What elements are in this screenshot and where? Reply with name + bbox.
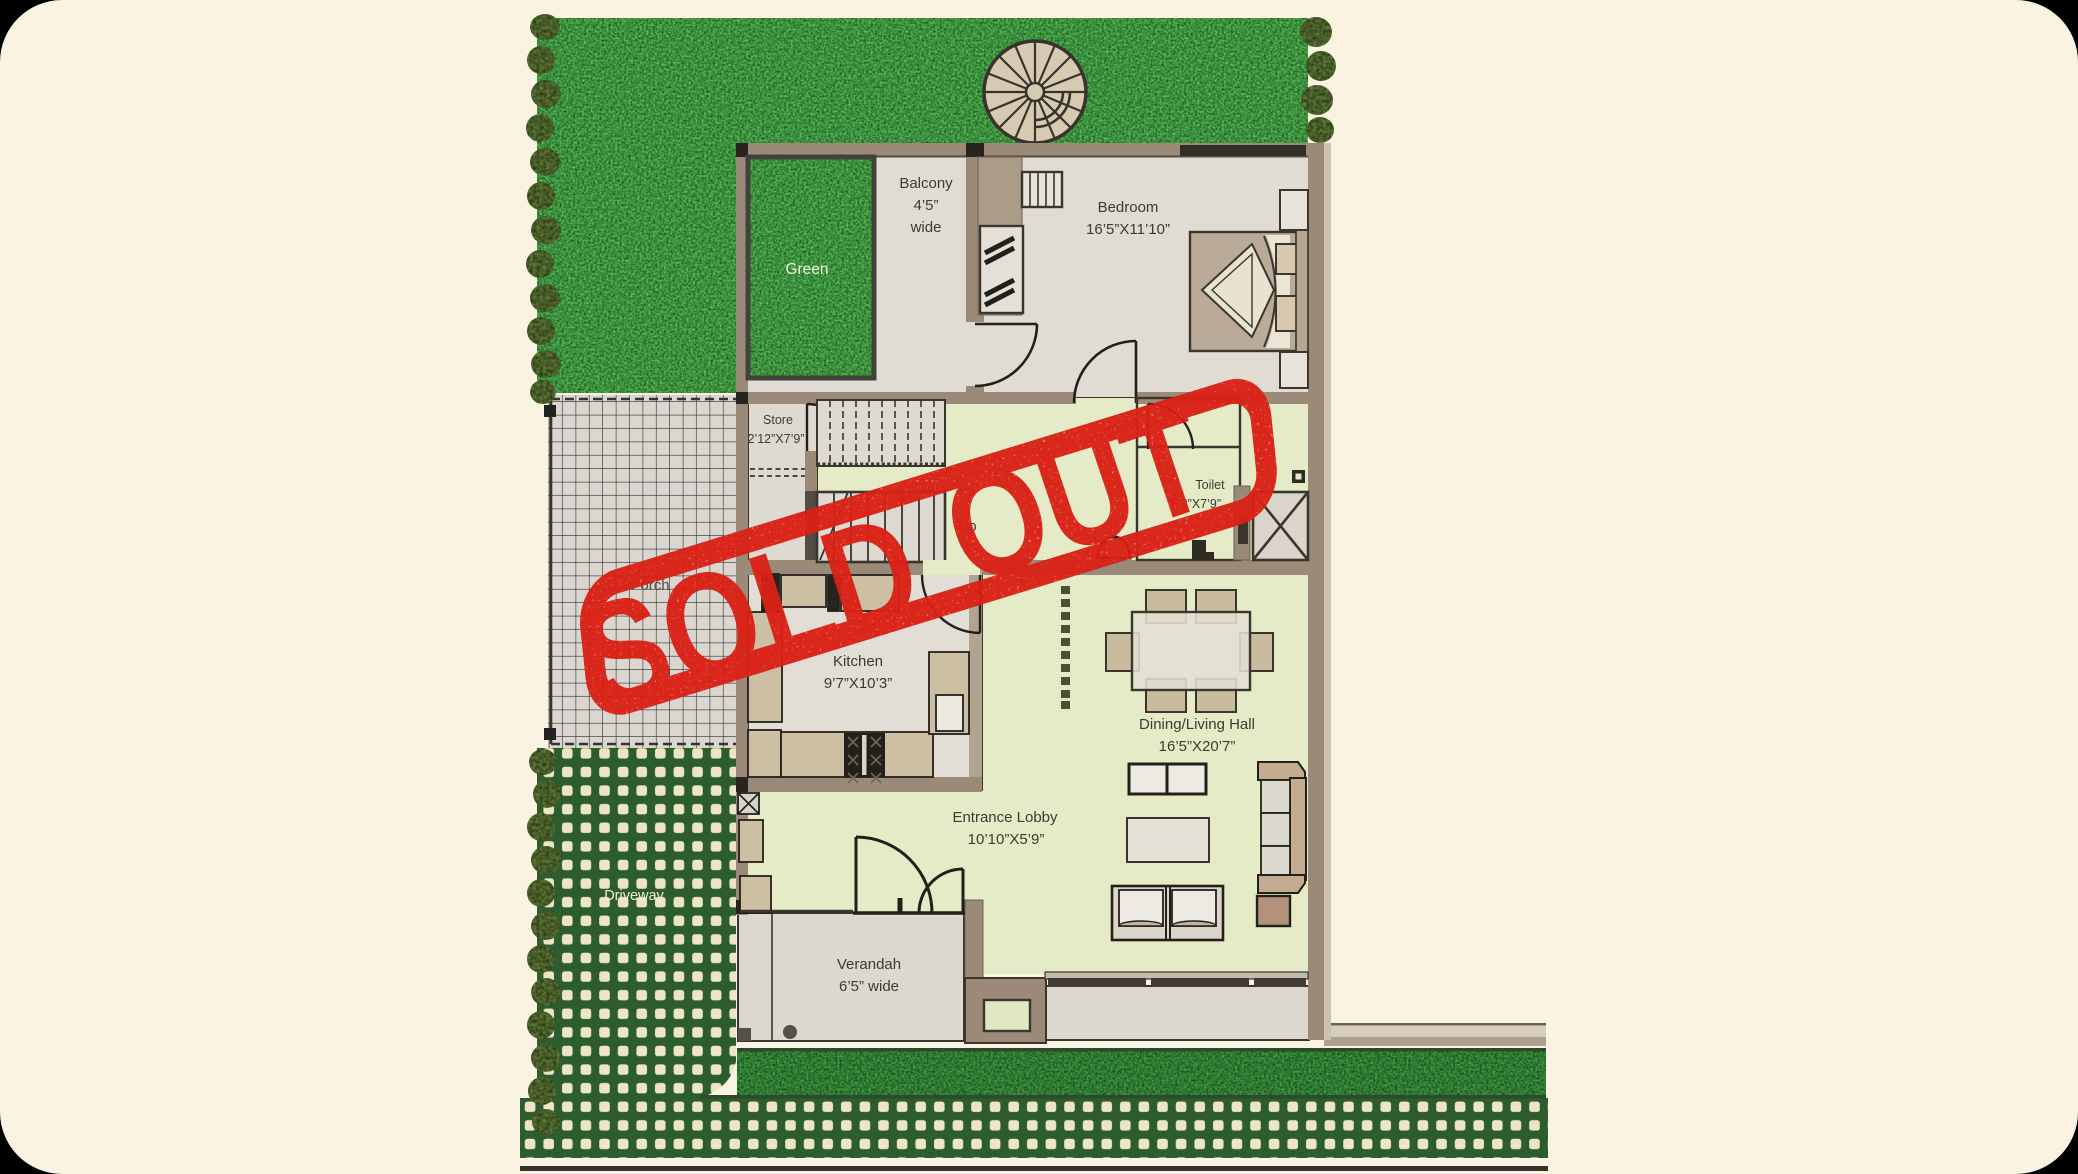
svg-text:Entrance Lobby: Entrance Lobby (952, 809, 1058, 826)
svg-text:Driveway: Driveway (604, 888, 664, 904)
svg-text:Balcony: Balcony (899, 175, 953, 192)
svg-text:Store: Store (763, 413, 793, 427)
svg-text:16’5”X20’7”: 16’5”X20’7” (1159, 738, 1236, 755)
svg-text:Green: Green (785, 261, 828, 278)
svg-text:4’5”: 4’5” (913, 197, 938, 214)
svg-text:Dining/Living Hall: Dining/Living Hall (1139, 716, 1255, 733)
svg-text:2’12”X7’9”: 2’12”X7’9” (748, 432, 805, 446)
svg-text:wide: wide (910, 219, 942, 236)
svg-text:10’10”X5’9”: 10’10”X5’9” (968, 831, 1045, 848)
svg-text:6’5” wide: 6’5” wide (839, 978, 899, 995)
svg-text:9’7”X10’3”: 9’7”X10’3” (824, 675, 892, 692)
svg-text:Verandah: Verandah (837, 956, 901, 973)
svg-text:Bedroom: Bedroom (1098, 199, 1159, 216)
svg-text:16’5”X11’10”: 16’5”X11’10” (1086, 221, 1170, 238)
